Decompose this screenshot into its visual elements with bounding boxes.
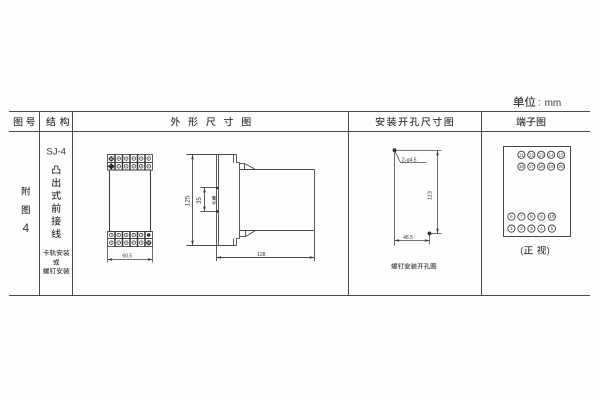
svg-text:2-φ4.5: 2-φ4.5 xyxy=(402,157,417,163)
svg-text:6: 6 xyxy=(510,214,513,219)
svg-text:60.5: 60.5 xyxy=(122,253,132,259)
svg-text:113: 113 xyxy=(428,191,434,200)
svg-text:8: 8 xyxy=(530,214,533,219)
svg-text:19: 19 xyxy=(549,164,555,169)
svg-text:18: 18 xyxy=(539,164,545,169)
svg-text:5: 5 xyxy=(551,226,554,231)
svg-text:7: 7 xyxy=(520,214,523,219)
svg-text:2: 2 xyxy=(520,226,523,231)
svg-text:125: 125 xyxy=(185,195,192,206)
svg-text:4: 4 xyxy=(540,226,543,231)
svg-text:48.5: 48.5 xyxy=(403,235,413,241)
svg-text:12: 12 xyxy=(529,152,535,157)
svg-text:35: 35 xyxy=(197,197,203,204)
svg-text:10: 10 xyxy=(549,214,555,219)
svg-text:(: ( xyxy=(520,245,524,256)
svg-text:4: 4 xyxy=(22,221,29,235)
svg-text:11: 11 xyxy=(519,152,524,157)
svg-text:): ) xyxy=(547,245,550,256)
svg-text:128: 128 xyxy=(257,252,266,258)
svg-text::: : xyxy=(538,98,541,109)
svg-text:17: 17 xyxy=(529,164,535,169)
svg-text:mm: mm xyxy=(545,98,562,109)
svg-text:15: 15 xyxy=(558,152,564,157)
svg-text:13: 13 xyxy=(539,152,545,157)
svg-text:16: 16 xyxy=(519,164,525,169)
svg-text:20: 20 xyxy=(558,164,564,169)
svg-text:1: 1 xyxy=(510,226,513,231)
svg-text:3: 3 xyxy=(530,226,533,231)
svg-text:14: 14 xyxy=(549,152,555,157)
svg-text:SJ-4: SJ-4 xyxy=(46,147,66,158)
svg-text:9: 9 xyxy=(540,214,543,219)
